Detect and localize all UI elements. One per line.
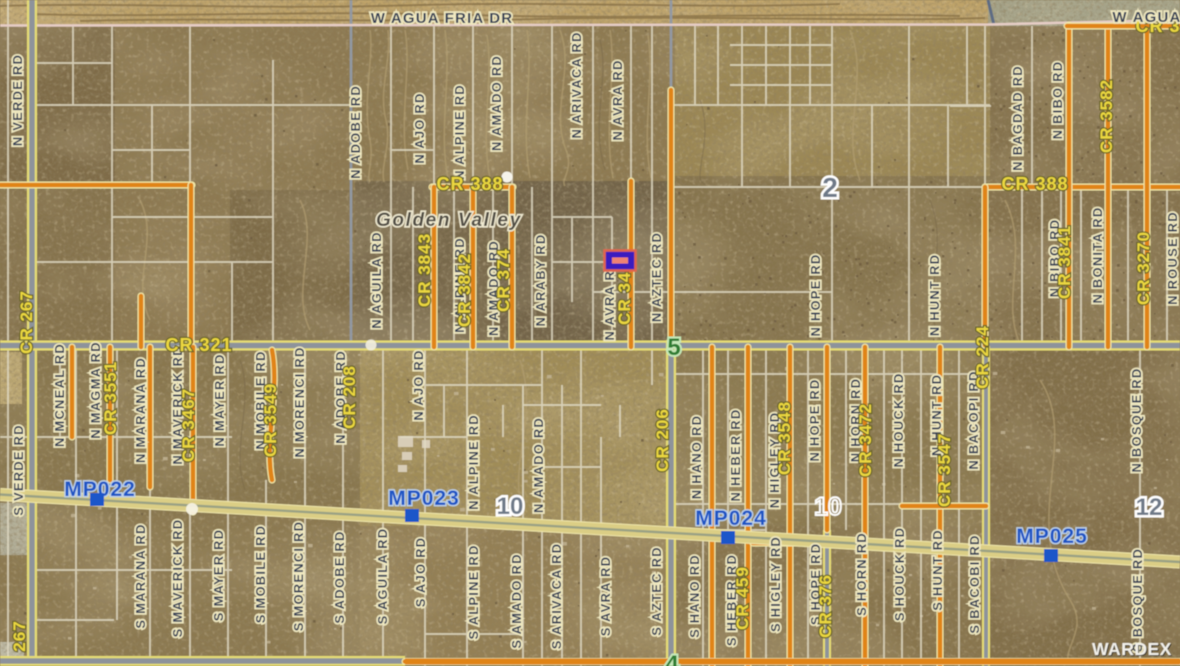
svg-text:N AGUILA RD: N AGUILA RD xyxy=(369,231,384,328)
svg-text:CR 3582: CR 3582 xyxy=(1097,79,1116,153)
svg-text:N AZTEC RD: N AZTEC RD xyxy=(649,232,664,322)
svg-text:CR 3551: CR 3551 xyxy=(101,361,120,435)
svg-text:S HOUCK RD: S HOUCK RD xyxy=(892,527,907,621)
svg-text:N VERDE RD: N VERDE RD xyxy=(10,54,25,146)
svg-text:S HORN RD: S HORN RD xyxy=(854,532,869,616)
svg-text:S MAVERICK RD: S MAVERICK RD xyxy=(170,519,185,638)
svg-text:CR 3467: CR 3467 xyxy=(179,388,198,462)
svg-text:N HUNT RD: N HUNT RD xyxy=(927,254,942,336)
svg-text:N BONITA RD: N BONITA RD xyxy=(1090,207,1105,304)
svg-text:S AZTEC RD: S AZTEC RD xyxy=(649,546,664,636)
svg-text:CR 3843: CR 3843 xyxy=(415,233,434,307)
svg-text:N AMADO RD: N AMADO RD xyxy=(489,55,504,151)
svg-text:N MARANA RD: N MARANA RD xyxy=(133,357,148,463)
svg-text:12: 12 xyxy=(1136,494,1163,521)
svg-text:N HANO RD: N HANO RD xyxy=(689,415,704,499)
svg-text:N HOUCK RD: N HOUCK RD xyxy=(891,372,906,467)
svg-text:S ADOBE RD: S ADOBE RD xyxy=(332,530,347,623)
svg-text:N ALPINE RD: N ALPINE RD xyxy=(452,84,467,180)
svg-text:S MARANA RD: S MARANA RD xyxy=(133,523,148,628)
svg-text:4: 4 xyxy=(665,651,679,666)
svg-text:CR 3549: CR 3549 xyxy=(261,383,280,457)
svg-text:N HEBER RD: N HEBER RD xyxy=(728,409,743,502)
svg-text:S HUNT RD: S HUNT RD xyxy=(930,529,945,611)
svg-text:S MORENCI RD: S MORENCI RD xyxy=(291,521,306,631)
svg-text:S HANO RD: S HANO RD xyxy=(687,554,702,638)
svg-text:S BOSQUE RD: S BOSQUE RD xyxy=(1130,548,1145,652)
svg-text:2: 2 xyxy=(822,172,838,203)
svg-text:N BOSQUE RD: N BOSQUE RD xyxy=(1129,368,1144,473)
svg-text:WARDEX: WARDEX xyxy=(1092,639,1172,659)
svg-text:S VERDE RD: S VERDE RD xyxy=(11,424,26,515)
svg-text:CR 3841: CR 3841 xyxy=(1055,225,1074,299)
svg-text:Golden Valley: Golden Valley xyxy=(376,210,522,231)
svg-text:W AGUA: W AGUA xyxy=(1112,9,1180,26)
svg-text:10: 10 xyxy=(497,493,524,520)
svg-text:N AVRA RD: N AVRA RD xyxy=(610,59,625,140)
svg-text:CR 208: CR 208 xyxy=(340,365,359,429)
svg-text:5: 5 xyxy=(667,334,680,361)
svg-text:W AGUA FRIA DR: W AGUA FRIA DR xyxy=(371,10,514,27)
svg-text:CR 3842: CR 3842 xyxy=(455,253,474,327)
svg-text:N HOPE RD: N HOPE RD xyxy=(807,378,822,461)
svg-text:N ADOBE RD: N ADOBE RD xyxy=(348,85,363,179)
svg-text:MP023: MP023 xyxy=(388,487,460,510)
svg-text:S BACOBI RD: S BACOBI RD xyxy=(967,534,982,633)
svg-text:N AJO RD: N AJO RD xyxy=(412,92,427,163)
svg-text:N HOPE RD: N HOPE RD xyxy=(808,253,823,336)
svg-text:S MAYER RD: S MAYER RD xyxy=(211,529,226,621)
svg-text:S ARIVACA RD: S ARIVACA RD xyxy=(549,543,564,649)
svg-text:N MAYER RD: N MAYER RD xyxy=(212,353,227,446)
svg-text:S AJO RD: S AJO RD xyxy=(413,537,428,608)
svg-text:N ARABY RD: N ARABY RD xyxy=(533,234,548,327)
svg-text:CR 3472: CR 3472 xyxy=(856,403,875,477)
svg-text:N ALPINE RD: N ALPINE RD xyxy=(466,414,481,510)
svg-text:CR 206: CR 206 xyxy=(653,408,672,472)
svg-text:N MCNEAL RD: N MCNEAL RD xyxy=(52,343,67,447)
svg-text:N MORENCI RD: N MORENCI RD xyxy=(292,346,307,457)
svg-text:S AMADO RD: S AMADO RD xyxy=(509,553,524,648)
svg-text:S MOBILE RD: S MOBILE RD xyxy=(253,525,268,623)
svg-text:MP024: MP024 xyxy=(695,507,767,530)
svg-text:CR 376: CR 376 xyxy=(816,574,835,638)
svg-text:N ROUSE RD: N ROUSE RD xyxy=(1165,211,1180,305)
svg-text:10: 10 xyxy=(814,493,842,521)
svg-text:S AGUILA RD: S AGUILA RD xyxy=(375,528,390,625)
svg-text:N ARIVACA RD: N ARIVACA RD xyxy=(569,31,584,138)
svg-text:N AJO RD: N AJO RD xyxy=(411,349,426,420)
svg-text:CR 267: CR 267 xyxy=(17,290,36,354)
svg-text:CR 374: CR 374 xyxy=(494,248,513,312)
svg-text:CR 459: CR 459 xyxy=(733,566,752,630)
svg-text:N AMADO RD: N AMADO RD xyxy=(531,417,546,513)
svg-text:CR 321: CR 321 xyxy=(165,335,232,355)
svg-text:CR 388: CR 388 xyxy=(436,174,503,194)
svg-text:CR 224: CR 224 xyxy=(973,325,992,389)
svg-text:S ALPINE RD: S ALPINE RD xyxy=(466,544,481,639)
svg-text:CR 3548: CR 3548 xyxy=(775,401,794,475)
svg-text:267: 267 xyxy=(10,620,29,651)
svg-text:S HIGLEY RD: S HIGLEY RD xyxy=(768,536,783,632)
svg-text:N BAGDAD RD: N BAGDAD RD xyxy=(1010,65,1025,171)
svg-text:N BIBO RD: N BIBO RD xyxy=(1050,61,1065,140)
svg-text:CR 388: CR 388 xyxy=(1001,174,1068,194)
svg-text:MP025: MP025 xyxy=(1016,525,1088,548)
svg-text:S AVRA RD: S AVRA RD xyxy=(598,556,613,636)
svg-text:CR 3547: CR 3547 xyxy=(935,433,954,507)
svg-text:CR 3270: CR 3270 xyxy=(1134,231,1153,305)
